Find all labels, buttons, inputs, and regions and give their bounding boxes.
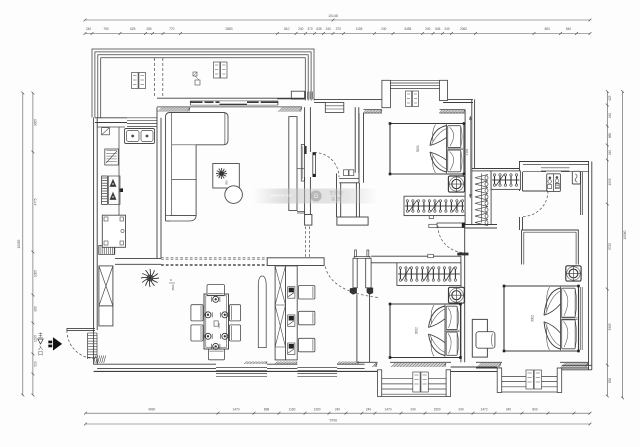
svg-text:650: 650 [608,378,612,384]
svg-text:3002: 3002 [530,315,534,322]
svg-text:3455: 3455 [404,27,411,31]
svg-text:370: 370 [336,27,342,31]
svg-text:2482: 2482 [465,148,469,155]
svg-text:800: 800 [532,407,538,411]
svg-text:1300: 1300 [313,407,320,411]
svg-text:880: 880 [608,133,612,139]
svg-text:3002: 3002 [414,327,418,334]
svg-text:艺巴黎: 艺巴黎 [329,190,343,196]
svg-text:10148: 10148 [328,14,338,18]
svg-text:790: 790 [103,27,109,31]
svg-text:240: 240 [381,27,387,31]
svg-text:3001: 3001 [416,145,420,152]
svg-text:'9708: '9708 [329,419,337,423]
svg-text:240: 240 [410,407,416,411]
svg-text:240: 240 [444,27,450,31]
svg-text:240: 240 [335,407,341,411]
svg-text:3725: 3725 [608,243,612,250]
svg-text:240: 240 [298,27,304,31]
svg-text:10060: 10060 [623,230,627,239]
svg-text:425: 425 [608,95,612,101]
svg-text:240: 240 [366,407,372,411]
svg-text:口: 口 [38,351,43,357]
svg-text:4090: 4090 [148,407,155,411]
svg-text:3305: 3305 [608,323,612,330]
svg-text:240: 240 [506,407,512,411]
svg-text:545: 545 [435,27,441,31]
svg-text:1400: 1400 [218,323,221,329]
svg-text:K: K [170,278,172,282]
svg-text:240: 240 [608,150,612,156]
svg-text:1160: 1160 [289,407,296,411]
svg-text:1005: 1005 [34,270,38,277]
svg-text:2060: 2060 [460,27,467,31]
svg-text:540: 540 [566,27,572,31]
svg-text:240: 240 [425,27,431,31]
svg-text:1470: 1470 [232,407,239,411]
svg-text:1500: 1500 [433,407,440,411]
svg-text:960: 960 [34,306,38,312]
svg-text:240: 240 [86,27,92,31]
svg-text:800: 800 [545,27,551,31]
svg-text:898: 898 [264,407,270,411]
svg-text:G: G [314,194,319,200]
svg-text:1472: 1472 [480,407,487,411]
svg-text:370: 370 [307,27,313,31]
svg-text:1470: 1470 [384,407,391,411]
svg-text:10065: 10065 [17,239,21,248]
svg-text:主: 主 [38,332,43,339]
svg-text:1155: 1155 [356,27,363,31]
svg-text:800: 800 [225,180,229,185]
svg-text:240: 240 [458,407,464,411]
svg-text:529: 529 [34,361,38,367]
svg-text:装 饰: 装 饰 [331,196,342,203]
svg-text:www.yibali.com: www.yibali.com [270,194,292,198]
svg-text:4775: 4775 [34,198,38,205]
svg-text:4500: 4500 [171,284,175,290]
svg-text:625: 625 [130,27,136,31]
svg-text:635: 635 [316,27,322,31]
svg-text:3005: 3005 [34,119,38,126]
svg-text:770: 770 [169,27,175,31]
svg-text:2883: 2883 [225,27,232,31]
svg-text:280: 280 [146,27,152,31]
svg-text:240: 240 [608,113,612,119]
svg-text:240: 240 [326,27,332,31]
svg-text:810: 810 [284,27,290,31]
svg-text:1595: 1595 [608,178,612,185]
